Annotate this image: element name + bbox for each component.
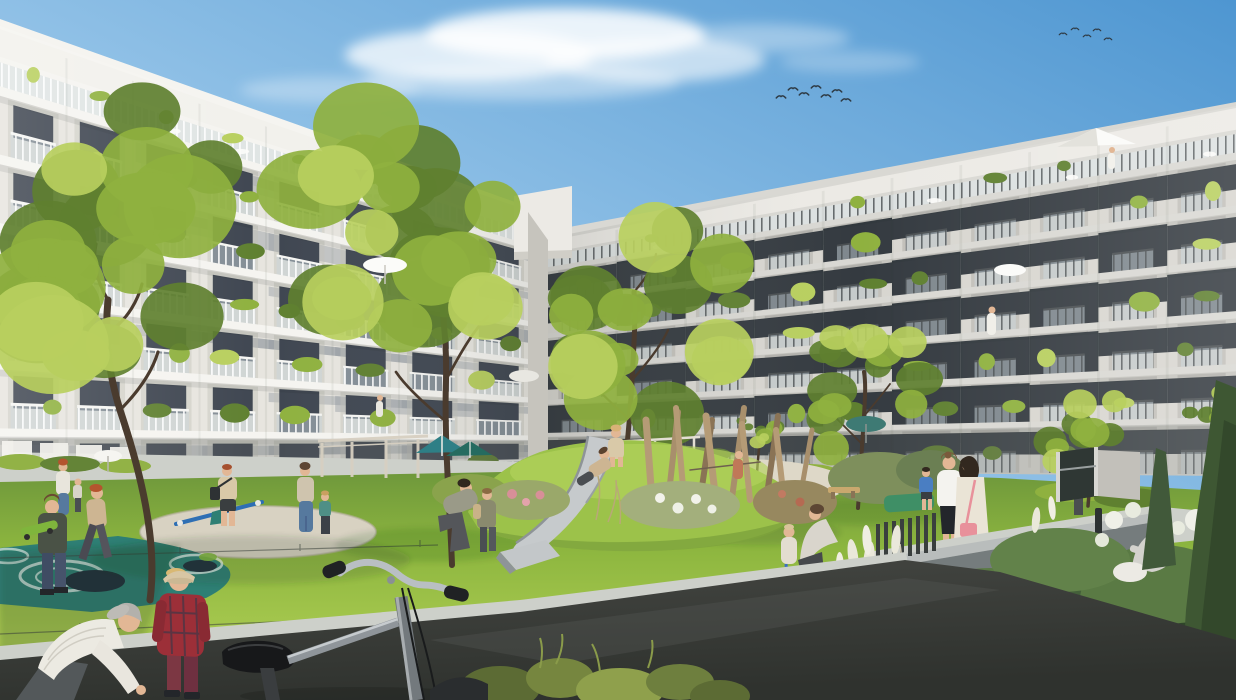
stair-pavilion bbox=[1056, 447, 1140, 502]
architectural-rendering: Modern residential courtyard — architect… bbox=[0, 0, 1236, 700]
